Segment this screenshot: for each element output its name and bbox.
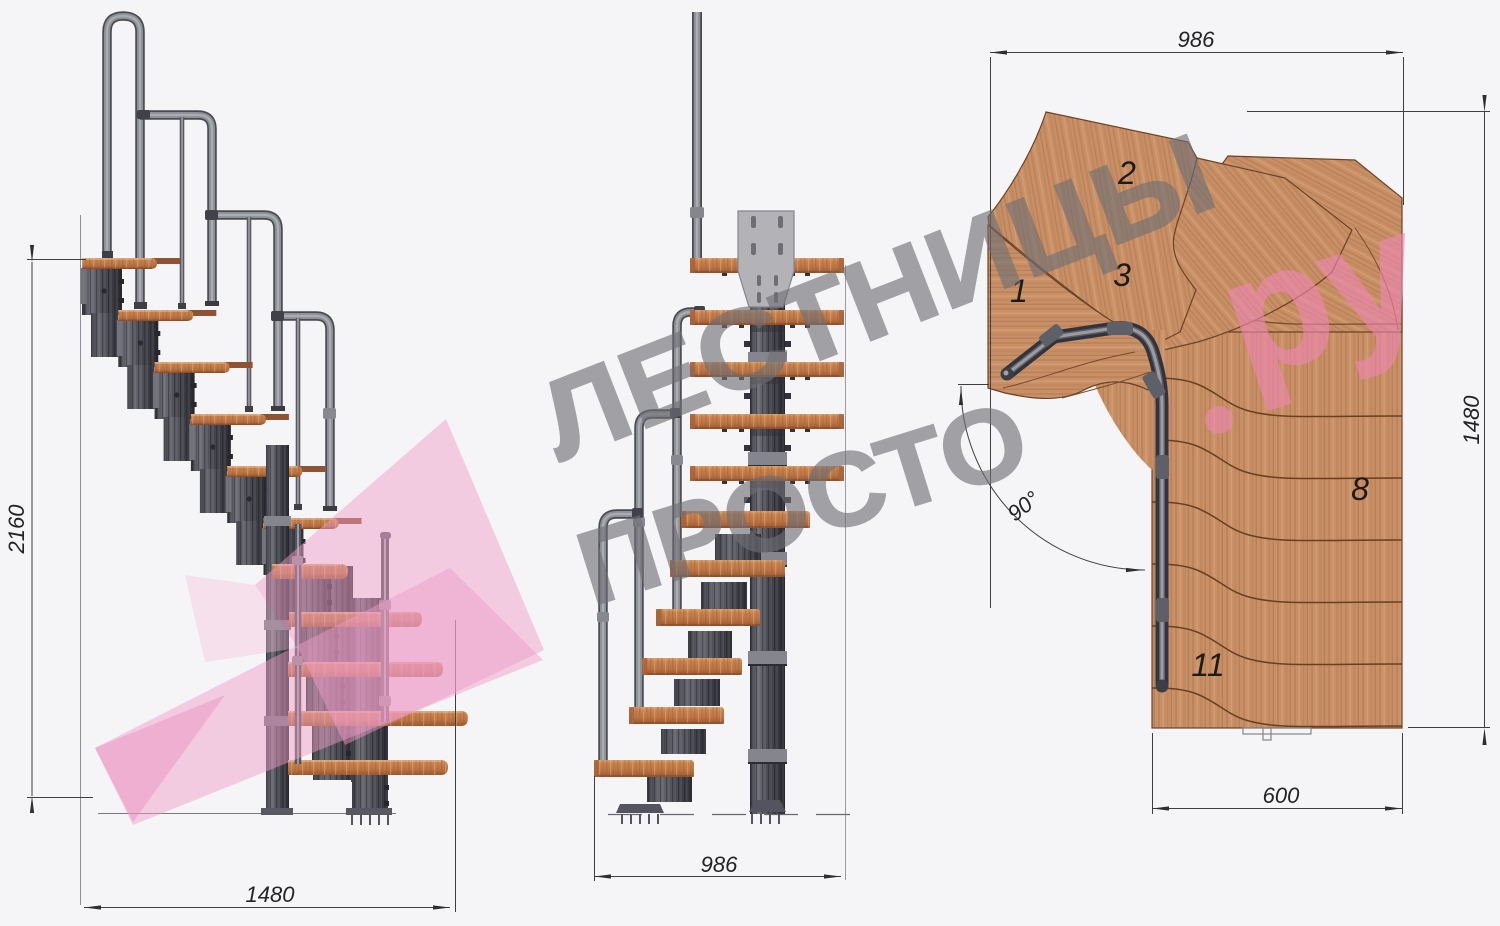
svg-text:2160: 2160 xyxy=(4,504,29,555)
svg-text:986: 986 xyxy=(701,852,738,877)
svg-text:1480: 1480 xyxy=(246,882,296,907)
svg-text:8: 8 xyxy=(1351,471,1369,507)
svg-text:600: 600 xyxy=(1263,783,1300,808)
svg-text:11: 11 xyxy=(1191,647,1224,683)
svg-text:986: 986 xyxy=(1178,27,1215,52)
svg-text:1480: 1480 xyxy=(1459,395,1484,445)
